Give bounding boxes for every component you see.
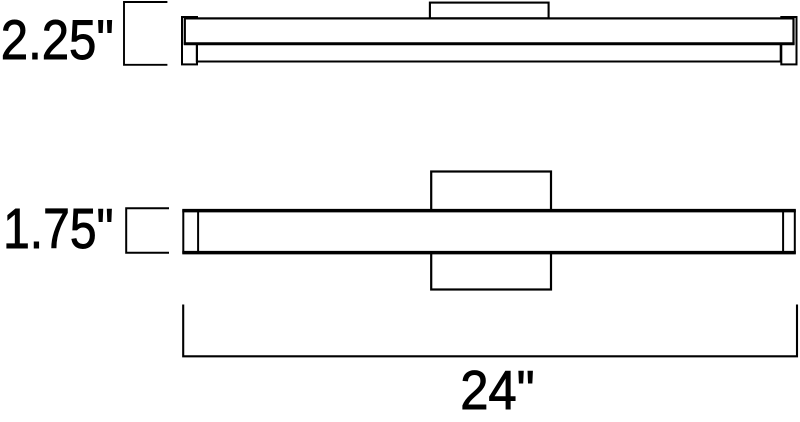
svg-text:2.25": 2.25" <box>1 8 114 71</box>
svg-text:24": 24" <box>460 359 535 421</box>
svg-text:1.75": 1.75" <box>3 197 114 261</box>
